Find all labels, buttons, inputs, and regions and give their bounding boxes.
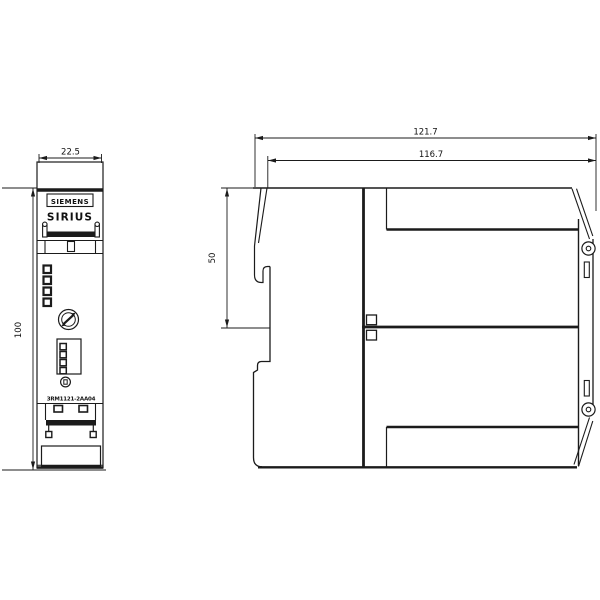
- terminal-marker-upper: [367, 315, 377, 325]
- dim-upper-height: 50: [208, 188, 270, 328]
- dim-depth-total: 121.7: [255, 128, 596, 212]
- dip-switch-block: [57, 339, 81, 374]
- dim-upper-height-label: 50: [208, 253, 218, 264]
- dim-depth-total-label: 121.7: [413, 128, 437, 138]
- terminal-marker-lower: [367, 330, 377, 340]
- front-claw: [255, 188, 271, 283]
- dim-width: 22.5: [39, 148, 102, 164]
- rotary-dial-icon: [59, 310, 79, 330]
- brand-label: SIEMENS: [51, 198, 89, 206]
- dim-height-label: 100: [14, 322, 24, 338]
- series-label: SIRIUS: [47, 212, 93, 224]
- dim-width-label: 22.5: [61, 148, 80, 158]
- part-number-label: 3RM1121-2AA04: [47, 397, 96, 403]
- led-indicators: [44, 266, 52, 307]
- dim-depth-body-label: 116.7: [419, 150, 443, 160]
- lower-connector-area: [37, 404, 103, 421]
- lower-terminal-bracket: [46, 420, 96, 438]
- label-field: [42, 446, 101, 466]
- terminal-cover-bottom: [387, 427, 580, 467]
- side-view: [253, 188, 595, 467]
- dimension-drawing: SIEMENS SIRIUS: [0, 0, 600, 600]
- front-face-profile: [254, 267, 271, 467]
- dim-height: 100: [2, 188, 106, 470]
- front-view: SIEMENS SIRIUS: [37, 162, 103, 468]
- upper-terminal-bracket: [43, 222, 100, 237]
- dimensional-drawing-page: SIEMENS SIRIUS: [0, 0, 600, 600]
- round-marker-icon: [61, 377, 71, 387]
- terminal-cover-top: [387, 188, 580, 230]
- upper-slot-row: [37, 241, 103, 254]
- dim-depth-body: 116.7: [268, 150, 596, 188]
